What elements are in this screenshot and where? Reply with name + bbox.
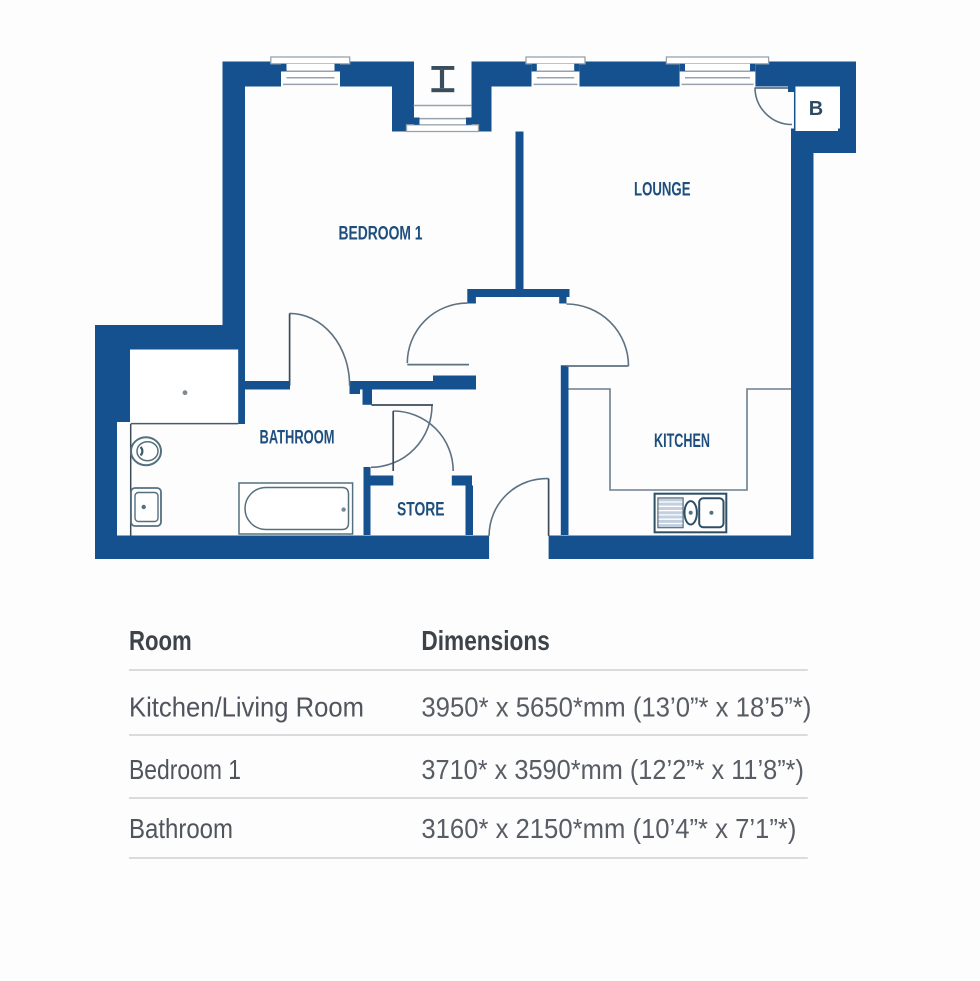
svg-text:Room: Room <box>129 625 192 656</box>
svg-text:Kitchen/Living Room: Kitchen/Living Room <box>129 692 364 723</box>
svg-text:KITCHEN: KITCHEN <box>654 431 710 452</box>
svg-text:3950* x 5650*mm (13’0”* x 18’5: 3950* x 5650*mm (13’0”* x 18’5”*) <box>421 692 811 723</box>
svg-text:B: B <box>809 98 823 120</box>
svg-text:BATHROOM: BATHROOM <box>260 428 335 449</box>
svg-text:3160* x 2150*mm (10’4”* x 7’1”: 3160* x 2150*mm (10’4”* x 7’1”*) <box>421 813 796 844</box>
svg-text:Dimensions: Dimensions <box>421 625 549 656</box>
svg-text:3710* x 3590*mm (12’2”* x 11’8: 3710* x 3590*mm (12’2”* x 11’8”*) <box>421 754 804 785</box>
svg-text:Bedroom 1: Bedroom 1 <box>129 754 241 785</box>
svg-text:LOUNGE: LOUNGE <box>634 180 691 201</box>
svg-text:BEDROOM 1: BEDROOM 1 <box>339 223 423 244</box>
svg-text:STORE: STORE <box>397 500 445 521</box>
svg-text:Bathroom: Bathroom <box>129 813 233 844</box>
